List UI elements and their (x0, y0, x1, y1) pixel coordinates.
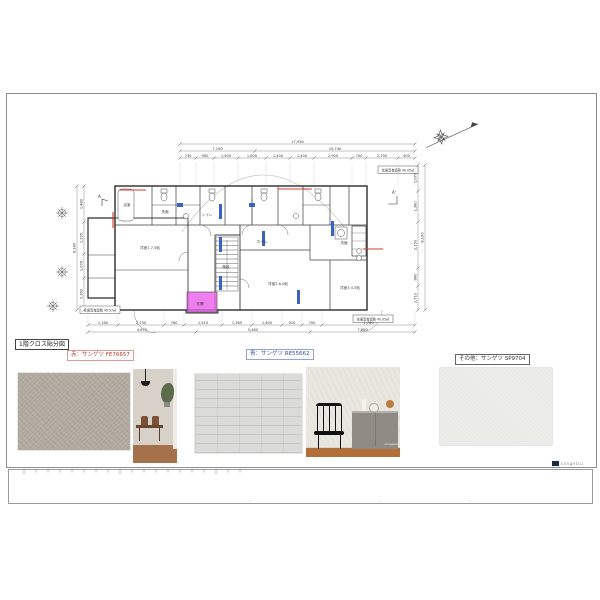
svg-text:1,380: 1,380 (414, 201, 418, 212)
svg-text:1,400: 1,400 (297, 154, 308, 158)
toilet (209, 189, 215, 201)
sink (184, 214, 189, 219)
wallpaper-swatch-blue (195, 374, 302, 453)
chair-spindle (341, 406, 342, 432)
area-note-left-bottom: 住居専有面積 40.57㎡ (80, 306, 120, 314)
svg-text:1,400: 1,400 (262, 321, 273, 325)
wallpaper-swatch-other (440, 368, 552, 445)
svg-text:7,190: 7,190 (212, 147, 223, 151)
chair-leg (340, 435, 341, 449)
maker-stamp: sangetsu (552, 460, 583, 467)
chair-spindle (335, 406, 336, 432)
white-vase (362, 399, 366, 411)
svg-text:6,140: 6,140 (73, 242, 77, 253)
svg-text:880: 880 (414, 273, 418, 281)
svg-text:住居専有面積 40.05㎡: 住居専有面積 40.05㎡ (382, 168, 415, 173)
svg-text:住居専有面積 40.57㎡: 住居専有面積 40.57㎡ (84, 308, 117, 313)
material-label-other: その他：サンゲツ SP9704 (455, 354, 530, 365)
svg-text:1,365: 1,365 (232, 321, 242, 325)
svg-text:2,900: 2,900 (328, 154, 339, 158)
pendant-cord (145, 369, 146, 381)
svg-text:洗面: 洗面 (340, 240, 348, 245)
compass-rose (424, 122, 480, 148)
material-label-red: 赤：サンゲツ FE76657 (67, 350, 134, 361)
svg-text:17,930: 17,930 (291, 140, 304, 144)
svg-text:洋室1 7.5帖: 洋室1 7.5帖 (140, 245, 160, 250)
svg-text:900: 900 (202, 154, 210, 158)
svg-text:洋室3 4.5帖: 洋室3 4.5帖 (340, 285, 360, 290)
table-leg (139, 427, 140, 441)
svg-text:8,190: 8,190 (421, 232, 425, 243)
stamp-text: sangetsu (561, 461, 583, 466)
svg-text:730: 730 (185, 154, 193, 158)
svg-text:A: A (98, 194, 101, 199)
svg-text:1,400: 1,400 (273, 154, 284, 158)
plant-pot (164, 402, 170, 407)
dimension-lines (77, 144, 425, 332)
drawing-title: 1階クロス貼分図 (15, 339, 69, 350)
svg-text:10,740: 10,740 (329, 147, 342, 151)
door-arcs (179, 225, 288, 288)
wood-floor (306, 448, 400, 457)
pendant-lamp (141, 381, 150, 386)
door-frame (173, 369, 177, 449)
svg-text:400: 400 (403, 154, 411, 158)
svg-text:1,180: 1,180 (98, 321, 109, 325)
red-wall-highlights (113, 189, 383, 249)
svg-text:洗面: 洗面 (161, 209, 169, 214)
cabinet-seam (375, 413, 376, 447)
svg-text:2,150: 2,150 (414, 239, 418, 250)
svg-text:1,295: 1,295 (80, 233, 84, 243)
svg-text:7,800: 7,800 (357, 328, 368, 332)
svg-text:1,760: 1,760 (363, 321, 374, 325)
toilet (315, 189, 321, 201)
chair-spindle (317, 406, 318, 432)
drawing-page: A A' 住居専有面積 40.05㎡ 住居専有面積 40.57㎡ 住居専有面積 … (0, 0, 600, 600)
chair-leg (318, 435, 319, 449)
toilet (161, 189, 167, 201)
stove-burner (357, 256, 362, 261)
blue-wall-highlights (177, 203, 334, 304)
svg-text:玄関: 玄関 (196, 301, 204, 306)
chair-spindle (329, 406, 330, 432)
glass-dome (369, 403, 379, 413)
svg-text:5,460: 5,460 (248, 328, 259, 332)
svg-text:1,910: 1,910 (198, 321, 209, 325)
wallpaper-photo-blue: sangetsu (306, 367, 400, 457)
table-leg (159, 427, 160, 441)
svg-text:トイレ: トイレ (202, 213, 213, 217)
svg-text:1,400: 1,400 (221, 154, 232, 158)
large-arc (182, 175, 348, 232)
stamp-logo-icon (552, 461, 559, 466)
floor-plan-drawing: A A' 住居専有面積 40.05㎡ 住居専有面積 40.57㎡ 住居専有面積 … (0, 0, 600, 600)
orange-lamp (386, 400, 394, 408)
stove-burner (357, 249, 362, 254)
svg-text:1,800: 1,800 (247, 154, 258, 158)
svg-text:910: 910 (289, 321, 297, 325)
strip-tick-marks (24, 469, 470, 502)
washing-machine (335, 227, 347, 239)
material-label-blue: 青：サンゲツ RE55662 (246, 349, 314, 360)
svg-text:1,005: 1,005 (80, 261, 84, 271)
wallpaper-photo-red (133, 369, 177, 463)
svg-text:2,360: 2,360 (80, 288, 84, 299)
svg-text:A': A' (392, 190, 396, 195)
compass-needle (424, 124, 480, 148)
dimension-numbers: 17,9307,19010,7407309001,4001,8001,4001,… (73, 140, 427, 334)
svg-text:階段: 階段 (222, 264, 230, 269)
section-marker-a: A (98, 194, 108, 206)
benchmark-symbols (47, 207, 68, 312)
wallpaper-swatch-red (18, 373, 130, 450)
svg-text:700: 700 (309, 321, 317, 325)
svg-text:2,710: 2,710 (414, 292, 418, 303)
svg-text:洋室2 6.0帖: 洋室2 6.0帖 (268, 281, 288, 286)
photo-watermark: sangetsu (384, 442, 398, 446)
svg-text:2,730: 2,730 (377, 154, 388, 158)
svg-text:4,670: 4,670 (137, 328, 148, 332)
chair-spindle (323, 406, 324, 432)
svg-text:700: 700 (356, 154, 364, 158)
svg-text:1,480: 1,480 (80, 198, 84, 209)
svg-text:浴室: 浴室 (123, 202, 131, 207)
section-marker-a-prime: A' (388, 190, 397, 204)
svg-text:ホール: ホール (257, 239, 268, 244)
toilet (261, 189, 267, 201)
sink (294, 214, 299, 219)
svg-text:760: 760 (171, 321, 179, 325)
svg-text:1,070: 1,070 (414, 172, 418, 183)
svg-text:2,730: 2,730 (136, 321, 147, 325)
